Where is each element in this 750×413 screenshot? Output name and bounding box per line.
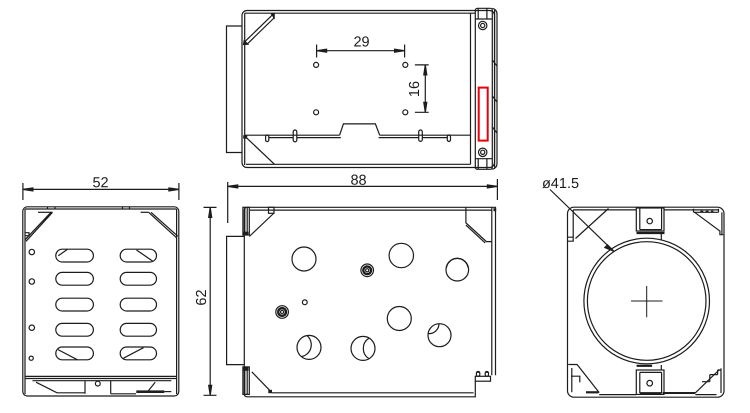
svg-text:62: 62 bbox=[194, 289, 210, 305]
svg-text:52: 52 bbox=[92, 175, 108, 191]
svg-text:ø41.5: ø41.5 bbox=[542, 176, 579, 192]
svg-text:29: 29 bbox=[353, 34, 369, 50]
svg-text:16: 16 bbox=[407, 81, 423, 97]
svg-text:88: 88 bbox=[350, 173, 366, 189]
